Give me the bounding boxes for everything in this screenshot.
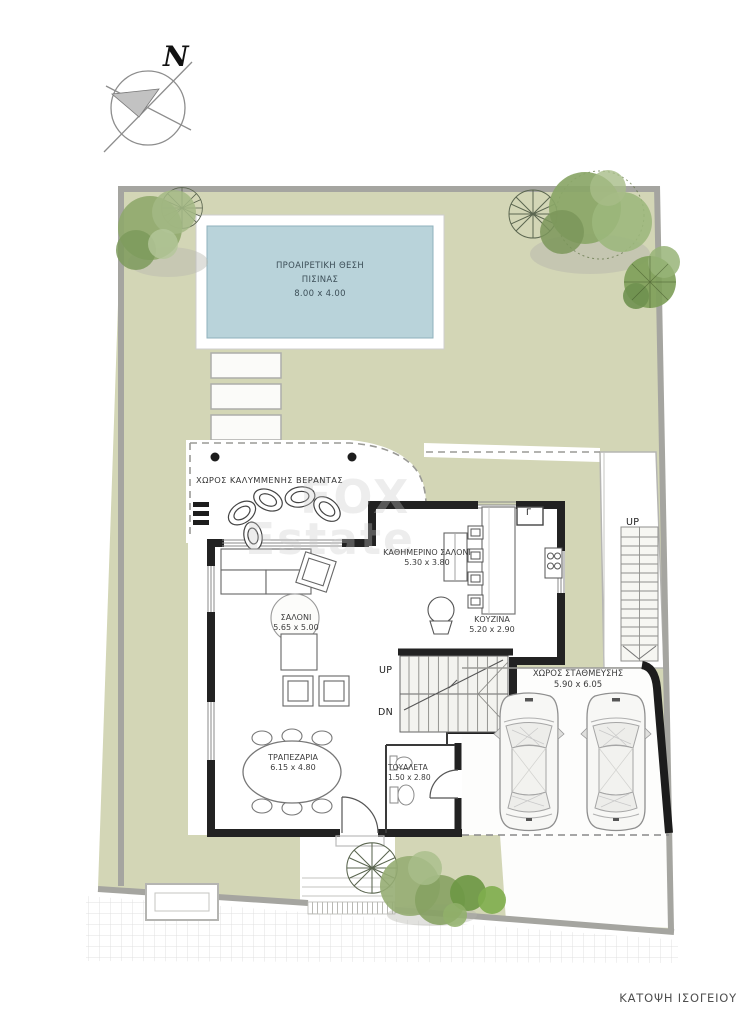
toilet-dims: 1.50 x 2.80 <box>388 773 431 783</box>
stairs-down-label: DN <box>378 707 393 718</box>
pool-label: ΠΡΟΑΙΡΕΤΙΚΗ ΘΕΣΗ ΠΙΣΙΝΑΣ 8.00 x 4.00 <box>276 259 364 301</box>
room-label-toilet: ΤΟΥΑΛΕΤΑ 1.50 x 2.80 <box>388 763 431 783</box>
car-right <box>581 693 651 831</box>
pool-label-dims: 8.00 x 4.00 <box>276 287 364 301</box>
kitchen-dims: 5.20 x 2.90 <box>469 625 514 635</box>
room-label-living: ΣΑΛΟΝΙ 5.65 x 5.00 <box>273 613 318 634</box>
plan-title: ΚΑΤΟΨΗ ΙΣΟΓΕΙΟΥ <box>619 991 737 1005</box>
car-left <box>494 693 564 831</box>
north-label: N <box>163 40 189 73</box>
dining-dims: 6.15 x 4.80 <box>268 763 318 773</box>
external-stairs-up-label: UP <box>626 517 639 528</box>
stove <box>545 548 562 578</box>
kitchen-name: ΚΟΥΖΙΝΑ <box>469 615 514 625</box>
room-label-family: ΚΑΘΗΜΕΡΙΝΟ ΣΑΛΟΝΙ 5.30 x 3.80 <box>383 548 471 569</box>
room-label-kitchen: ΚΟΥΖΙΝΑ 5.20 x 2.90 <box>469 615 514 636</box>
living-dims: 5.65 x 5.00 <box>273 623 318 633</box>
room-label-veranda: ΧΩΡΟΣ ΚΑΛΥΜΜΕΝΗΣ ΒΕΡΑΝΤΑΣ <box>196 475 343 485</box>
room-label-dining: ΤΡΑΠΕΖΑΡΙΑ 6.15 x 4.80 <box>268 753 318 774</box>
floor-plan-page: FOX Estate N ΠΡΟΑΙΡΕΤΙΚΗ ΘΕΣΗ ΠΙΣΙΝΑΣ 8.… <box>0 0 745 1024</box>
garden-planter <box>146 884 218 920</box>
family-name: ΚΑΘΗΜΕΡΙΝΟ ΣΑΛΟΝΙ <box>383 548 471 558</box>
pool-label-line1: ΠΡΟΑΙΡΕΤΙΚΗ ΘΕΣΗ <box>276 259 364 273</box>
dining-name: ΤΡΑΠΕΖΑΡΙΑ <box>268 753 318 763</box>
house-west-strip <box>188 543 207 835</box>
compass <box>104 62 192 152</box>
parking-dims: 5.90 x 6.05 <box>533 680 623 691</box>
driveway <box>500 835 672 928</box>
fridge-label: Γ <box>526 508 531 518</box>
room-label-parking: ΧΩΡΟΣ ΣΤΑΘΜΕΥΣΗΣ 5.90 x 6.05 <box>533 669 623 691</box>
stairs-up-label: UP <box>379 665 392 676</box>
family-dims: 5.30 x 3.80 <box>383 558 471 568</box>
toilet-name: ΤΟΥΑΛΕΤΑ <box>388 763 431 773</box>
living-name: ΣΑΛΟΝΙ <box>273 613 318 623</box>
parking-name: ΧΩΡΟΣ ΣΤΑΘΜΕΥΣΗΣ <box>533 669 623 680</box>
pool-label-line2: ΠΙΣΙΝΑΣ <box>276 273 364 287</box>
sun-loungers <box>211 353 281 440</box>
gate-threshold <box>308 902 395 914</box>
